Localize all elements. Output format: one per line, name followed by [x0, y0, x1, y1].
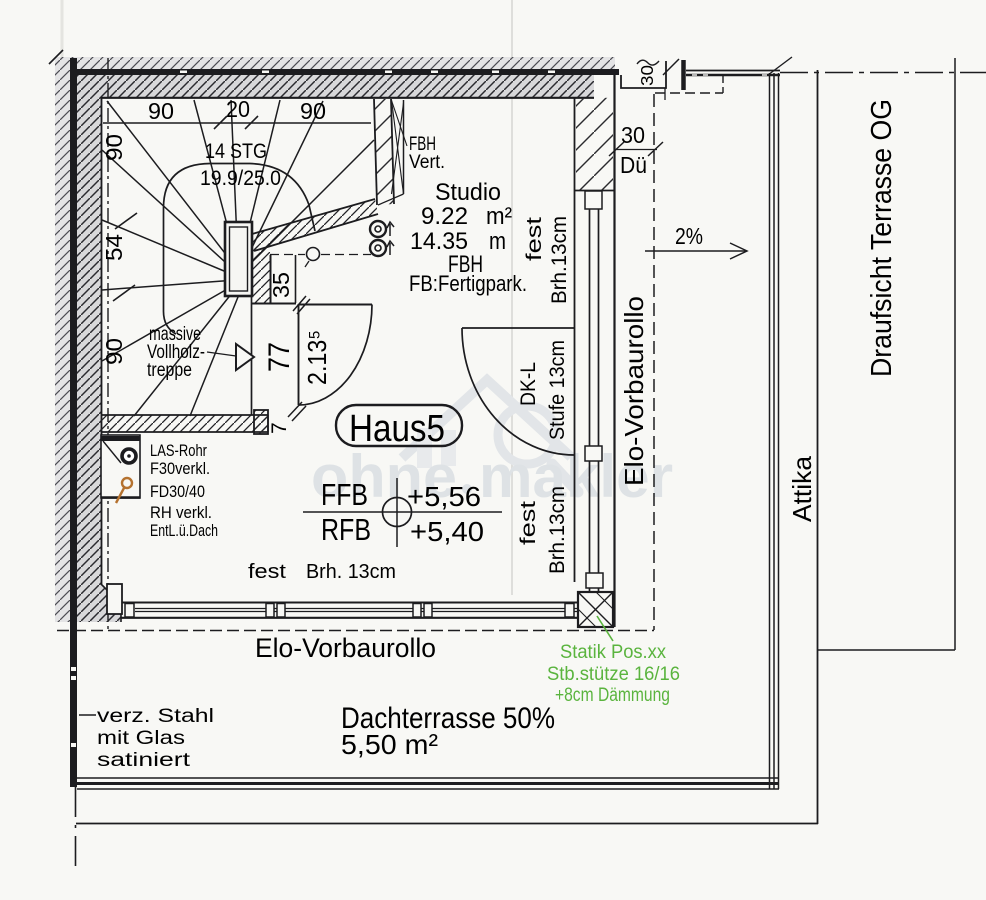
svg-text:Vert.: Vert. [409, 152, 445, 173]
svg-text:9.22: 9.22 [421, 203, 468, 230]
svg-text:20: 20 [226, 96, 250, 122]
svg-text:2.13⁵: 2.13⁵ [302, 330, 332, 385]
svg-text:treppe: treppe [147, 359, 192, 381]
svg-text:Brh.13cm: Brh.13cm [546, 486, 569, 574]
svg-text:RFB: RFB [321, 512, 371, 547]
svg-text:90: 90 [148, 98, 174, 124]
svg-text:fest: fest [523, 217, 546, 261]
svg-text:FD30/40: FD30/40 [150, 483, 205, 501]
svg-text:m²: m² [486, 203, 512, 230]
svg-text:Dü: Dü [620, 152, 647, 178]
svg-text:mit Glas: mit Glas [97, 728, 185, 749]
svg-text:satiniert: satiniert [97, 750, 191, 771]
svg-text:DK-L: DK-L [517, 362, 540, 406]
svg-text:FB:Fertigpark.: FB:Fertigpark. [409, 271, 527, 296]
svg-text:7: 7 [268, 422, 291, 434]
svg-text:Stufe 13cm: Stufe 13cm [546, 340, 569, 440]
svg-text:30: 30 [621, 122, 645, 148]
svg-text:LAS-Rohr: LAS-Rohr [150, 442, 207, 460]
svg-text:5,50 m²: 5,50 m² [341, 729, 438, 760]
svg-text:Elo-Vorbaurollo: Elo-Vorbaurollo [619, 296, 649, 486]
svg-text:m: m [489, 228, 506, 255]
svg-text:+5,40: +5,40 [410, 516, 484, 547]
svg-text:77: 77 [263, 342, 296, 372]
svg-text:90: 90 [300, 98, 326, 124]
svg-text:30: 30 [637, 65, 657, 86]
svg-text:+5,56: +5,56 [407, 481, 481, 512]
svg-text:14 STG: 14 STG [205, 140, 267, 163]
svg-text:verz. Stahl: verz. Stahl [97, 706, 214, 727]
svg-text:35: 35 [268, 272, 294, 298]
svg-text:Draufsicht Terrasse OG: Draufsicht Terrasse OG [866, 99, 898, 377]
svg-text:Brh.13cm: Brh.13cm [548, 216, 571, 304]
svg-text:90: 90 [101, 134, 127, 161]
svg-text:fest: fest [517, 501, 540, 545]
svg-text:FFB: FFB [321, 477, 368, 512]
svg-text:Stb.stütze 16/16: Stb.stütze 16/16 [547, 664, 680, 685]
svg-text:19.9/25.0: 19.9/25.0 [200, 167, 281, 190]
svg-text:Brh. 13cm: Brh. 13cm [306, 561, 396, 583]
svg-text:Elo-Vorbaurollo: Elo-Vorbaurollo [255, 633, 436, 663]
svg-text:fest: fest [248, 561, 287, 583]
svg-text:90: 90 [101, 338, 127, 365]
svg-text:EntL.ü.Dach: EntL.ü.Dach [150, 522, 218, 540]
svg-text:Statik Pos.xx: Statik Pos.xx [560, 642, 666, 663]
svg-text:RH verkl.: RH verkl. [150, 504, 212, 522]
svg-text:F30verkl.: F30verkl. [150, 460, 210, 478]
svg-text:2%: 2% [675, 223, 703, 249]
svg-text:54: 54 [101, 234, 127, 261]
svg-text:Haus5: Haus5 [349, 408, 445, 450]
svg-text:+8cm Dämmung: +8cm Dämmung [555, 685, 670, 706]
svg-text:Attika: Attika [787, 455, 817, 522]
svg-text:Studio: Studio [435, 179, 501, 206]
